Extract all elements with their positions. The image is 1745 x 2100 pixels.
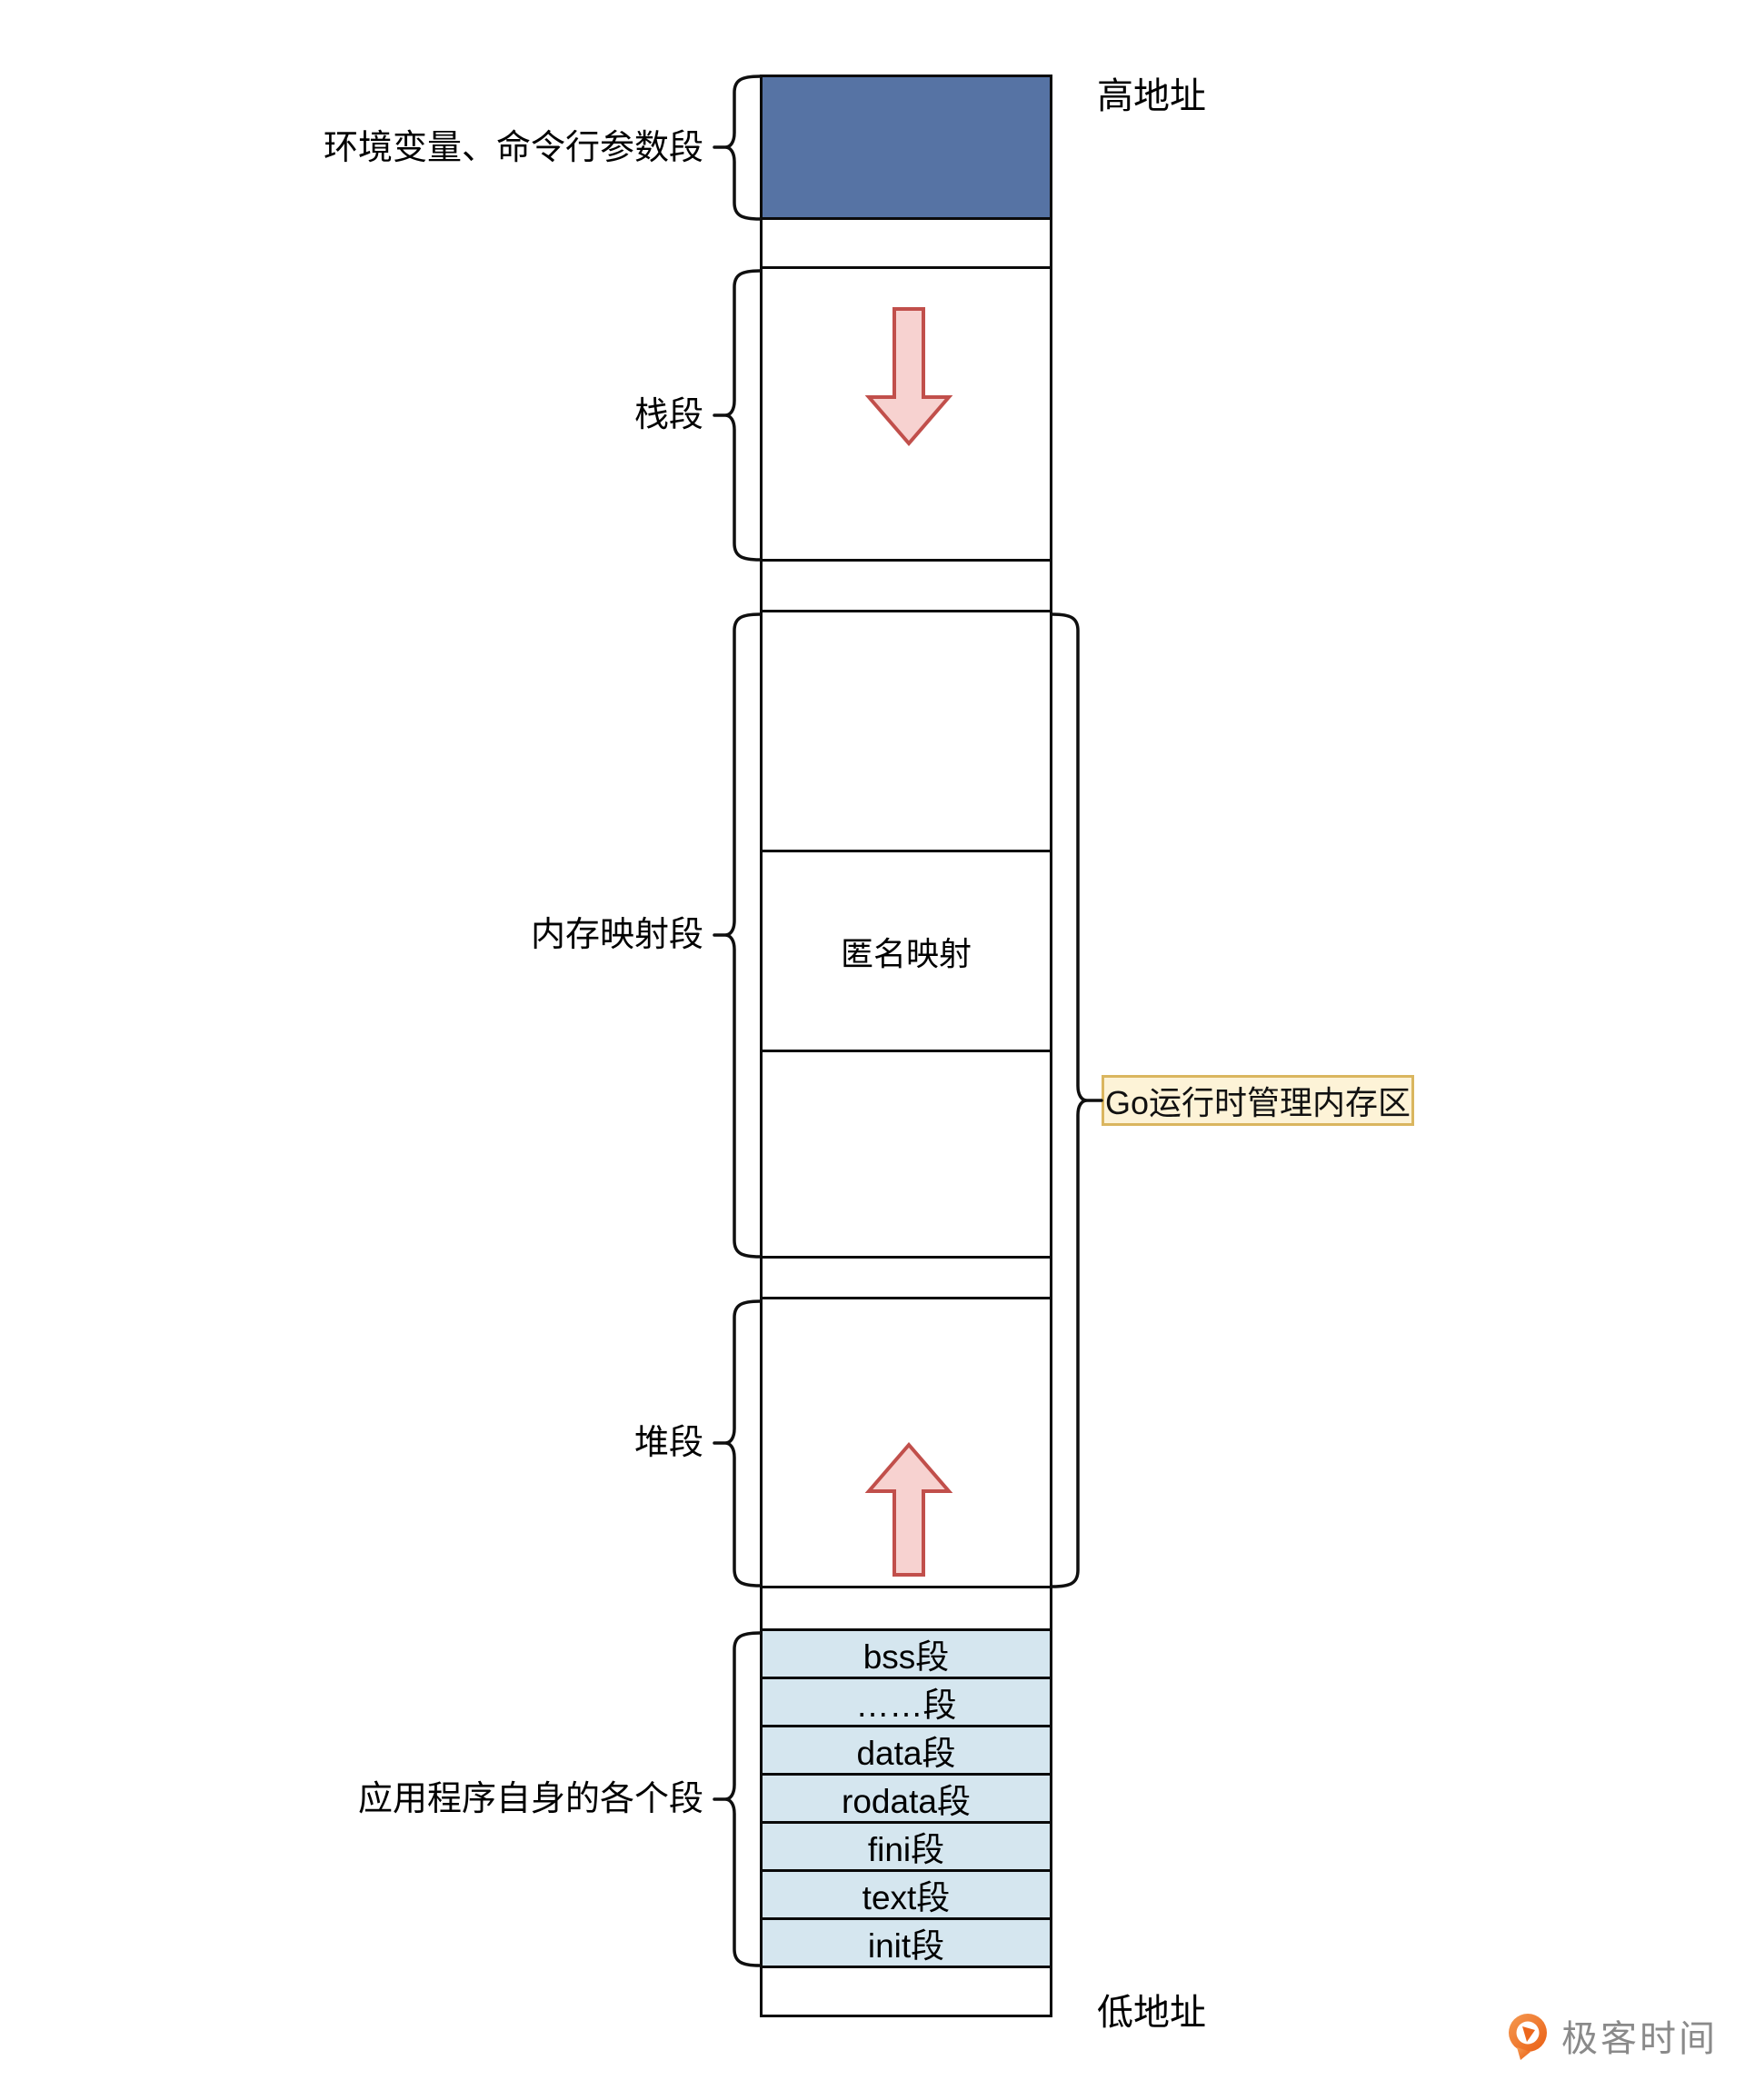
row-gap [763, 562, 1050, 612]
row-mmap-anonymous: 匿名映射 [763, 852, 1050, 1052]
segment-row-init: init段 [763, 1920, 1050, 1968]
app-segments-label: 应用程序自身的各个段 [158, 1777, 703, 1822]
anonymous-mapping-label: 匿名映射 [841, 928, 972, 975]
curly-brace-env [714, 76, 760, 219]
row-mmap-file-mapping [763, 612, 1050, 852]
process-memory-layout-diagram: 匿名映射 bss段 ……段 data段 rodata段 fini段 text段 … [0, 0, 1745, 2100]
segment-row-bss: bss段 [763, 1631, 1050, 1679]
segment-row-fini: fini段 [763, 1824, 1050, 1872]
row-heap-segment [763, 1299, 1050, 1588]
heap-segment-label: 堆段 [158, 1420, 703, 1466]
row-env-segment [763, 77, 1050, 220]
high-address-label: 高地址 [1097, 75, 1206, 118]
row-gap [763, 1588, 1050, 1631]
env-segment-label: 环境变量、命令行参数段 [158, 125, 703, 171]
curly-brace-mmap [714, 614, 760, 1257]
memory-column: 匿名映射 bss段 ……段 data段 rodata段 fini段 text段 … [760, 75, 1052, 2017]
geektime-logo: 极客时间 [1507, 2014, 1718, 2065]
row-gap [763, 1968, 1050, 2015]
row-mmap-file-mapping [763, 1052, 1050, 1259]
mmap-segment-label: 内存映射段 [158, 912, 703, 958]
stack-segment-label: 栈段 [158, 393, 703, 438]
go-runtime-annotation-text: Go运行时管理内存区 [1105, 1077, 1411, 1124]
geektime-logo-text: 极客时间 [1561, 2014, 1718, 2065]
row-gap [763, 220, 1050, 269]
row-gap [763, 1259, 1050, 1299]
row-stack-segment [763, 269, 1050, 562]
curly-brace-go-runtime [1052, 614, 1102, 1587]
low-address-label: 低地址 [1097, 1991, 1206, 2035]
segment-row-data: data段 [763, 1727, 1050, 1776]
curly-brace-app-segments [714, 1633, 760, 1966]
segment-row-text: text段 [763, 1872, 1050, 1920]
curly-brace-heap [714, 1301, 760, 1586]
go-runtime-annotation: Go运行时管理内存区 [1102, 1075, 1414, 1126]
segment-row-rodata: rodata段 [763, 1776, 1050, 1824]
curly-brace-stack [714, 271, 760, 560]
geektime-logo-icon [1507, 2014, 1549, 2065]
segment-row-ellipsis: ……段 [763, 1679, 1050, 1727]
